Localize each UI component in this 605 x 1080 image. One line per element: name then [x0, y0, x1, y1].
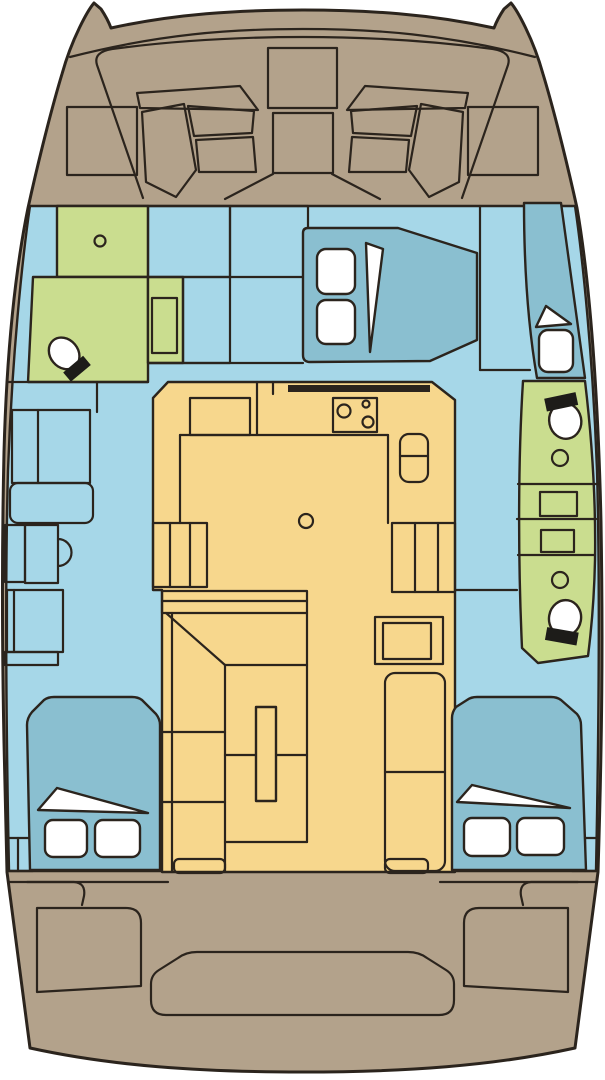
salon — [153, 382, 455, 873]
dinette-table-leaf — [256, 707, 276, 801]
forward-berth-pillow-1 — [317, 249, 355, 294]
port-aft-pillow-1 — [45, 820, 87, 857]
forward-berth-pillow-2 — [317, 300, 355, 344]
floor-plan-canvas: Catamaran interior layout — top-view flo… — [0, 0, 605, 1080]
port-aft-pillow-2 — [95, 820, 140, 857]
starboard-aft-pillow-1 — [464, 818, 510, 856]
starboard-aft-pillow-2 — [517, 818, 564, 855]
forward-cabin — [303, 228, 477, 362]
floor-plan-page: Catamaran interior layout — top-view flo… — [0, 0, 605, 1080]
port-forward-head-room — [57, 206, 148, 277]
galley-worktop-edge — [288, 385, 430, 392]
starboard-berth-pillow — [539, 330, 573, 372]
